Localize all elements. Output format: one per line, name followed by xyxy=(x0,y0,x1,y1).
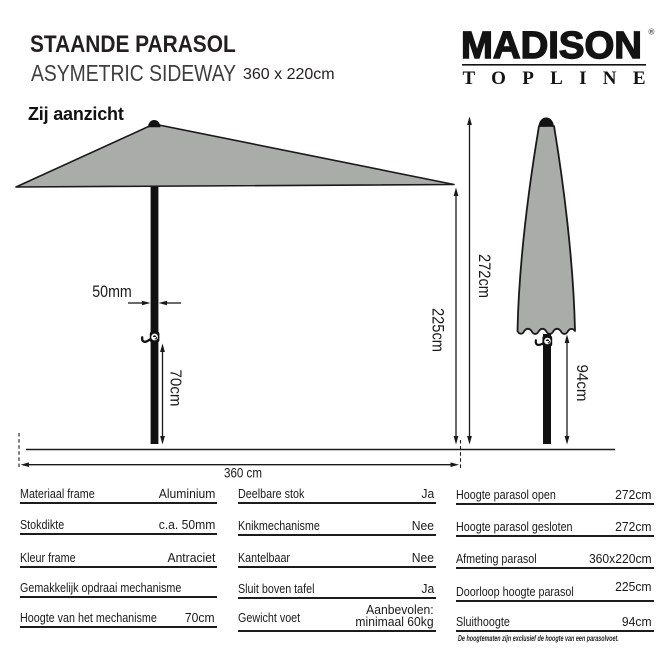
svg-text:94cm: 94cm xyxy=(573,365,590,402)
svg-text:272cm: 272cm xyxy=(475,254,493,298)
svg-text:50mm: 50mm xyxy=(92,283,132,301)
svg-text:225cm: 225cm xyxy=(429,308,447,352)
svg-text:70cm: 70cm xyxy=(167,370,184,407)
